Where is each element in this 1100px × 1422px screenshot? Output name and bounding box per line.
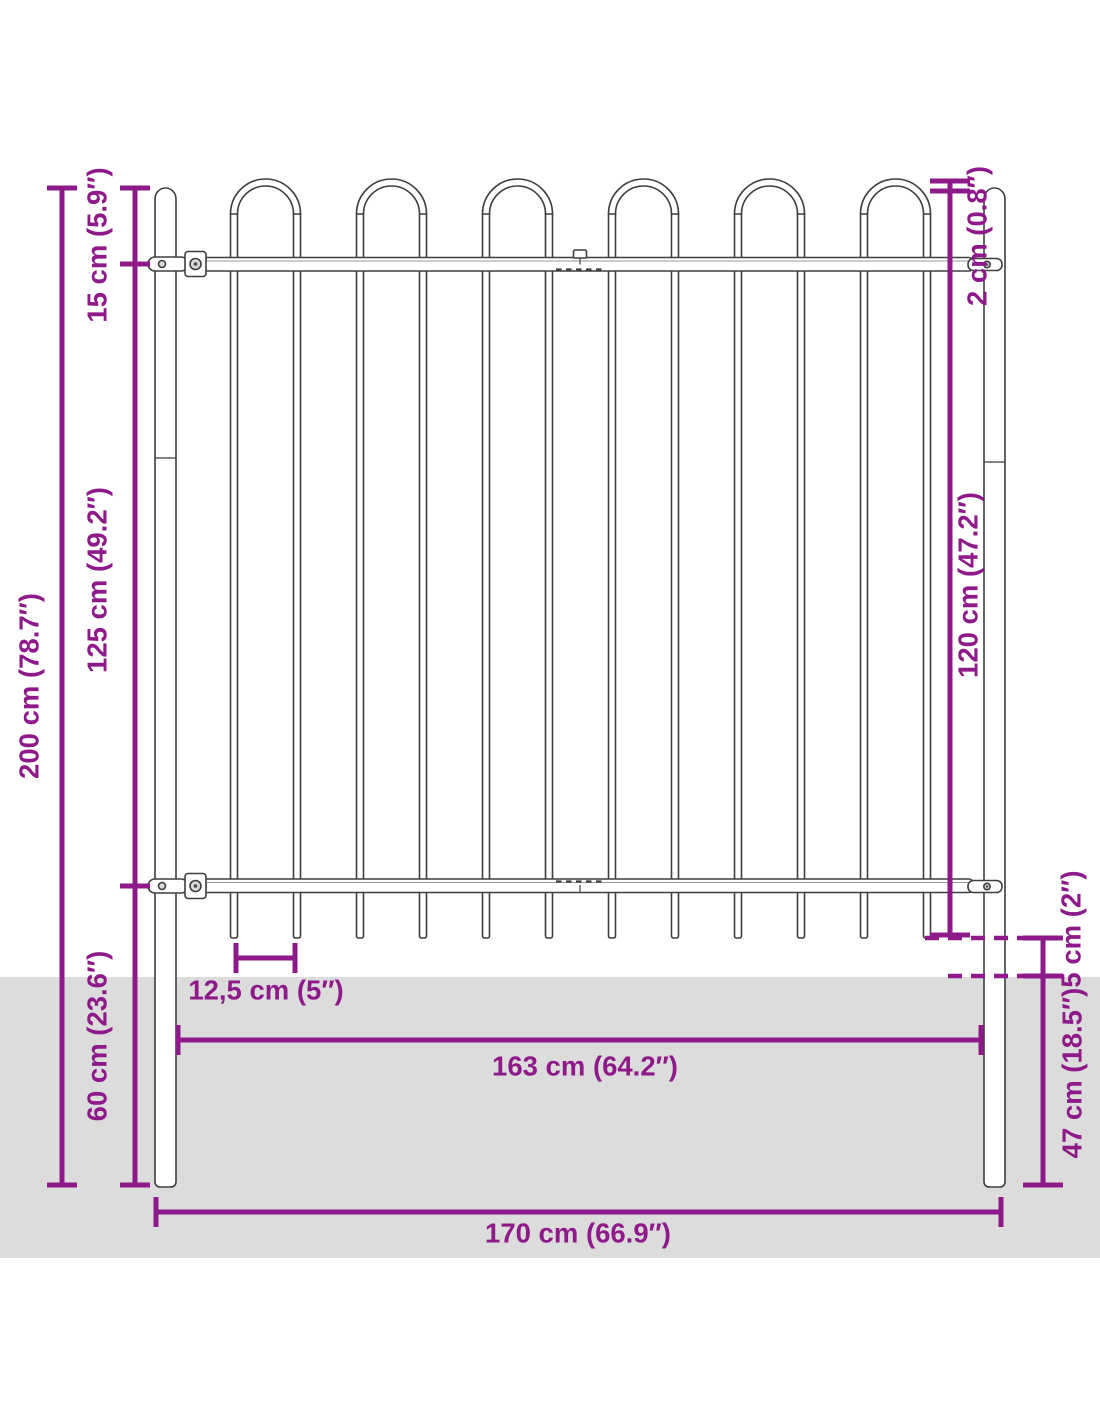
hoop-top <box>357 179 427 214</box>
hoop-top <box>231 179 301 214</box>
fence-hoops <box>231 179 931 214</box>
dim-label-panel-height: 120 cm (47.2″) <box>953 492 984 678</box>
dim-label-bar-spacing: 12,5 cm (5″) <box>188 975 343 1006</box>
left-post <box>155 188 176 1187</box>
fence-bar <box>798 212 805 938</box>
fence-rails <box>203 250 973 893</box>
fence-dimension-diagram: 200 cm (78.7″) 15 cm (5.9″) 125 cm (49.2… <box>0 0 1100 1422</box>
bolt-icon <box>159 261 166 268</box>
bracket-bottom-right <box>968 881 1002 893</box>
bolt-dot <box>986 885 988 887</box>
bolt-icon <box>159 883 166 890</box>
fence-bars <box>231 212 931 938</box>
hoop-top <box>609 179 679 214</box>
dim-label-post-depth: 47 cm (18.5″) <box>1057 988 1088 1159</box>
bolt-dot <box>194 262 198 266</box>
fence-bar <box>294 212 301 938</box>
fence-bar <box>231 212 238 938</box>
dim-label-spike-to-ground: 5 cm (2″) <box>1056 870 1087 987</box>
bracket-arm <box>148 257 188 271</box>
fence-bar <box>357 212 364 938</box>
fence-bar <box>420 212 427 938</box>
fence-bar <box>483 212 490 938</box>
dim-label-inner-width: 163 cm (64.2″) <box>492 1051 678 1082</box>
hoop-top <box>861 179 931 214</box>
dim-bar-spacing <box>236 943 295 973</box>
right-post <box>984 188 1005 1187</box>
hoop-top <box>483 179 553 214</box>
dim-label-post-top-to-rail: 15 cm (5.9″) <box>82 167 113 322</box>
hoop-top <box>735 179 805 214</box>
dim-label-total-height: 200 cm (78.7″) <box>14 593 45 779</box>
fence-bar <box>735 212 742 938</box>
rail-clip <box>574 250 587 258</box>
dim-label-below-ground-left: 60 cm (23.6″) <box>82 951 113 1122</box>
fence-bar <box>672 212 679 938</box>
bracket-arm <box>148 879 188 893</box>
fence-bar <box>546 212 553 938</box>
fence-bar <box>924 212 931 938</box>
fence-bar <box>861 212 868 938</box>
fence-dimension-diagram-page: { "diagram": { "colors": { "accent": "#8… <box>0 0 1100 1422</box>
bolt-dot <box>194 884 198 888</box>
fence-bar <box>609 212 616 938</box>
dim-label-rail-to-rail: 125 cm (49.2″) <box>82 487 113 673</box>
dim-label-total-width: 170 cm (66.9″) <box>485 1218 671 1249</box>
dim-label-hoop-above-post: 2 cm (0.8″) <box>962 166 993 306</box>
